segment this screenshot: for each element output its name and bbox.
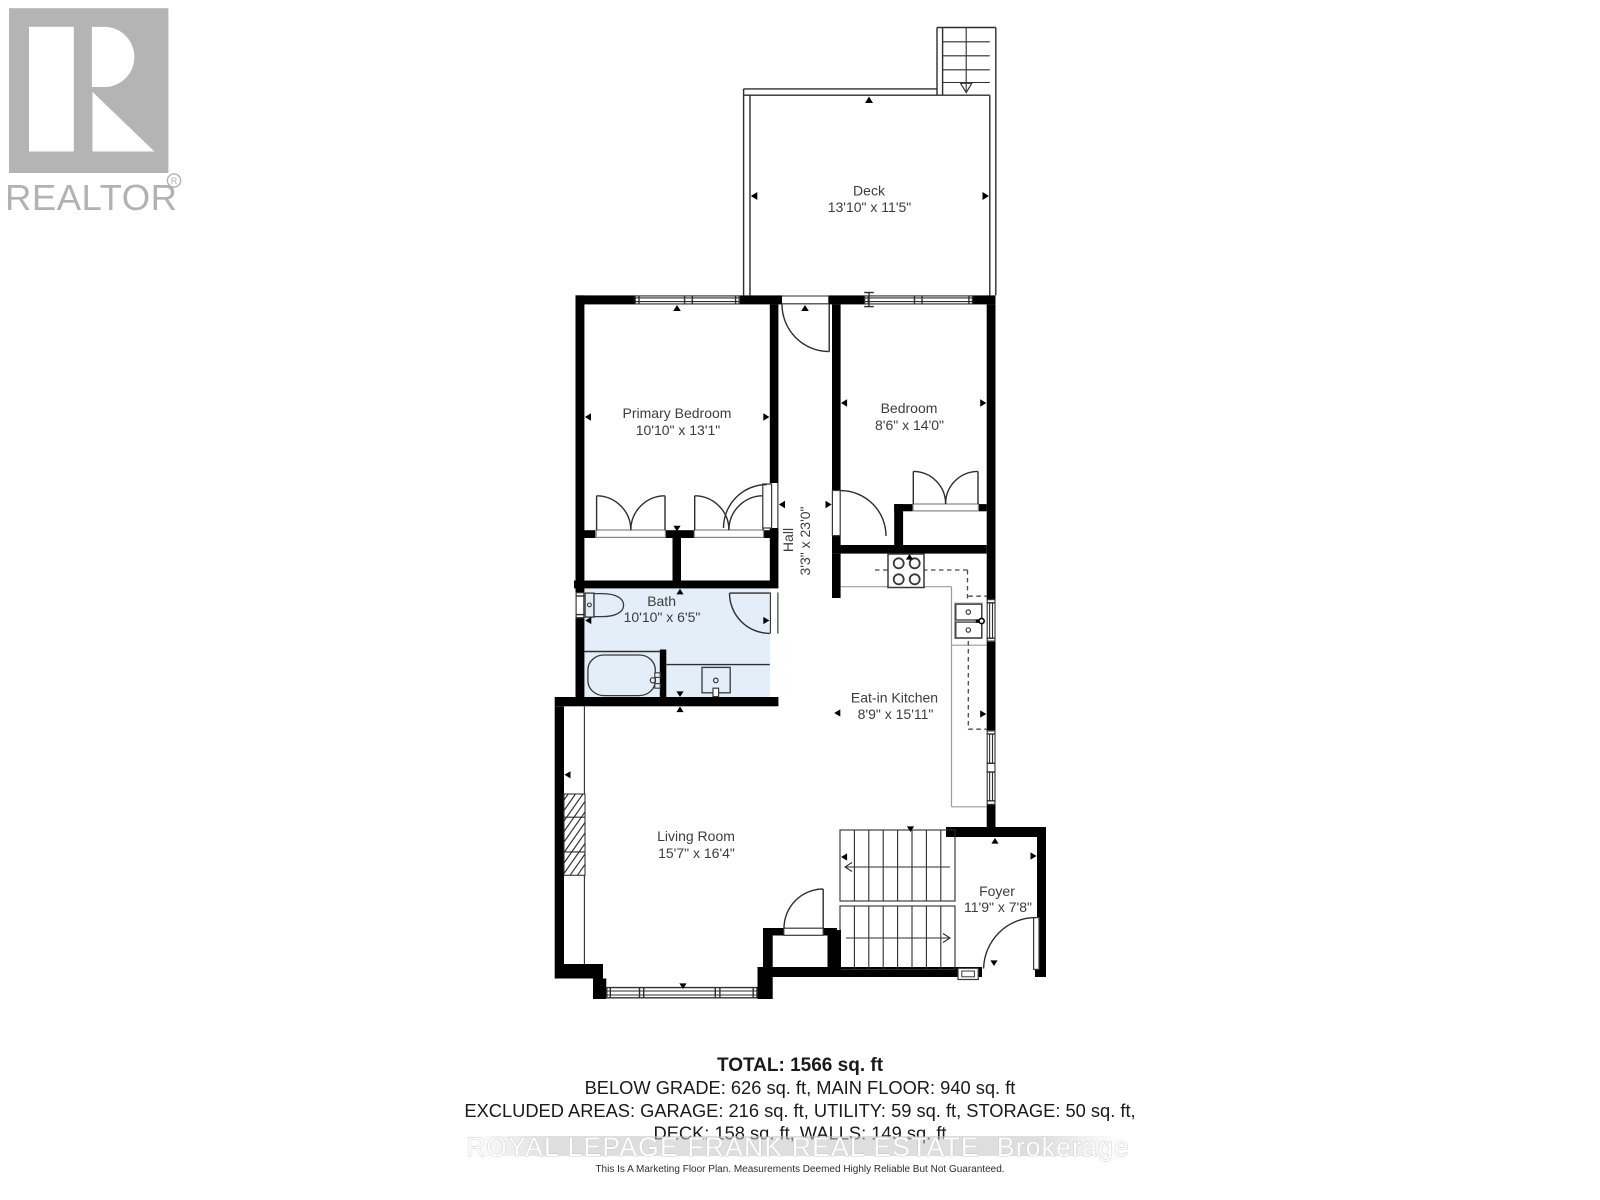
- svg-text:R: R: [171, 176, 178, 186]
- svg-text:This Is A Marketing Floor Plan: This Is A Marketing Floor Plan. Measurem…: [595, 1164, 1004, 1175]
- svg-text:ROYAL LEPAGE FRANK REAL ESTATE: ROYAL LEPAGE FRANK REAL ESTATE Brokerage: [466, 1132, 1130, 1162]
- svg-text:BELOW GRADE: 626 sq. ft, MAIN: BELOW GRADE: 626 sq. ft, MAIN FLOOR: 940…: [585, 1077, 1016, 1098]
- svg-text:11'9" x 7'8": 11'9" x 7'8": [964, 899, 1032, 915]
- svg-text:15'7" x 16'4": 15'7" x 16'4": [658, 845, 735, 861]
- svg-text:10'10" x 6'5": 10'10" x 6'5": [624, 609, 701, 625]
- svg-text:Primary Bedroom: Primary Bedroom: [623, 405, 732, 421]
- svg-text:Bath: Bath: [647, 593, 676, 609]
- svg-text:Eat-in Kitchen: Eat-in Kitchen: [851, 690, 938, 706]
- svg-text:Hall: Hall: [780, 528, 796, 552]
- svg-text:Living Room: Living Room: [657, 828, 735, 844]
- svg-text:8'9" x 15'11": 8'9" x 15'11": [858, 706, 934, 722]
- svg-text:Foyer: Foyer: [979, 883, 1015, 899]
- svg-text:8'6" x 14'0": 8'6" x 14'0": [875, 417, 944, 433]
- svg-text:13'10" x 11'5": 13'10" x 11'5": [828, 199, 912, 215]
- svg-text:Bedroom: Bedroom: [881, 400, 938, 416]
- svg-text:REALTOR: REALTOR: [5, 177, 178, 218]
- svg-text:TOTAL: 1566 sq. ft: TOTAL: 1566 sq. ft: [717, 1055, 884, 1076]
- svg-text:3'3" x 23'0": 3'3" x 23'0": [797, 506, 813, 575]
- svg-text:10'10" x 13'1": 10'10" x 13'1": [636, 422, 721, 438]
- svg-text:Deck: Deck: [853, 183, 886, 199]
- svg-text:EXCLUDED AREAS: GARAGE: 216 sq: EXCLUDED AREAS: GARAGE: 216 sq. ft, UTIL…: [464, 1100, 1135, 1121]
